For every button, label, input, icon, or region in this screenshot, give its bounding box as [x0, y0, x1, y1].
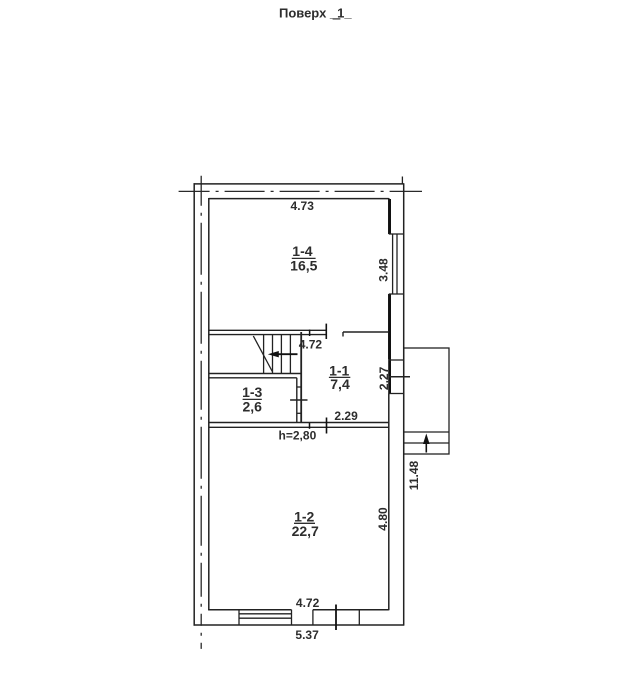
- svg-text:2,27: 2,27: [377, 366, 391, 390]
- svg-text:22,7: 22,7: [292, 523, 319, 539]
- svg-text:4.72: 4.72: [296, 596, 320, 610]
- svg-text:16,5: 16,5: [290, 258, 317, 274]
- svg-text:3.48: 3.48: [377, 258, 391, 282]
- svg-text:2,6: 2,6: [242, 398, 262, 414]
- svg-text:7,4: 7,4: [330, 376, 350, 392]
- svg-text:4.73: 4.73: [291, 199, 315, 213]
- svg-text:1-4: 1-4: [292, 243, 312, 259]
- svg-text:2.29: 2.29: [334, 409, 358, 423]
- svg-text:4.72: 4.72: [299, 338, 323, 352]
- svg-text:4.80: 4.80: [376, 507, 390, 531]
- svg-text:11.48: 11.48: [407, 460, 421, 490]
- svg-text:Поверх _1_: Поверх _1_: [279, 6, 352, 21]
- svg-text:5.37: 5.37: [295, 628, 319, 642]
- svg-text:h=2,80: h=2,80: [279, 429, 317, 443]
